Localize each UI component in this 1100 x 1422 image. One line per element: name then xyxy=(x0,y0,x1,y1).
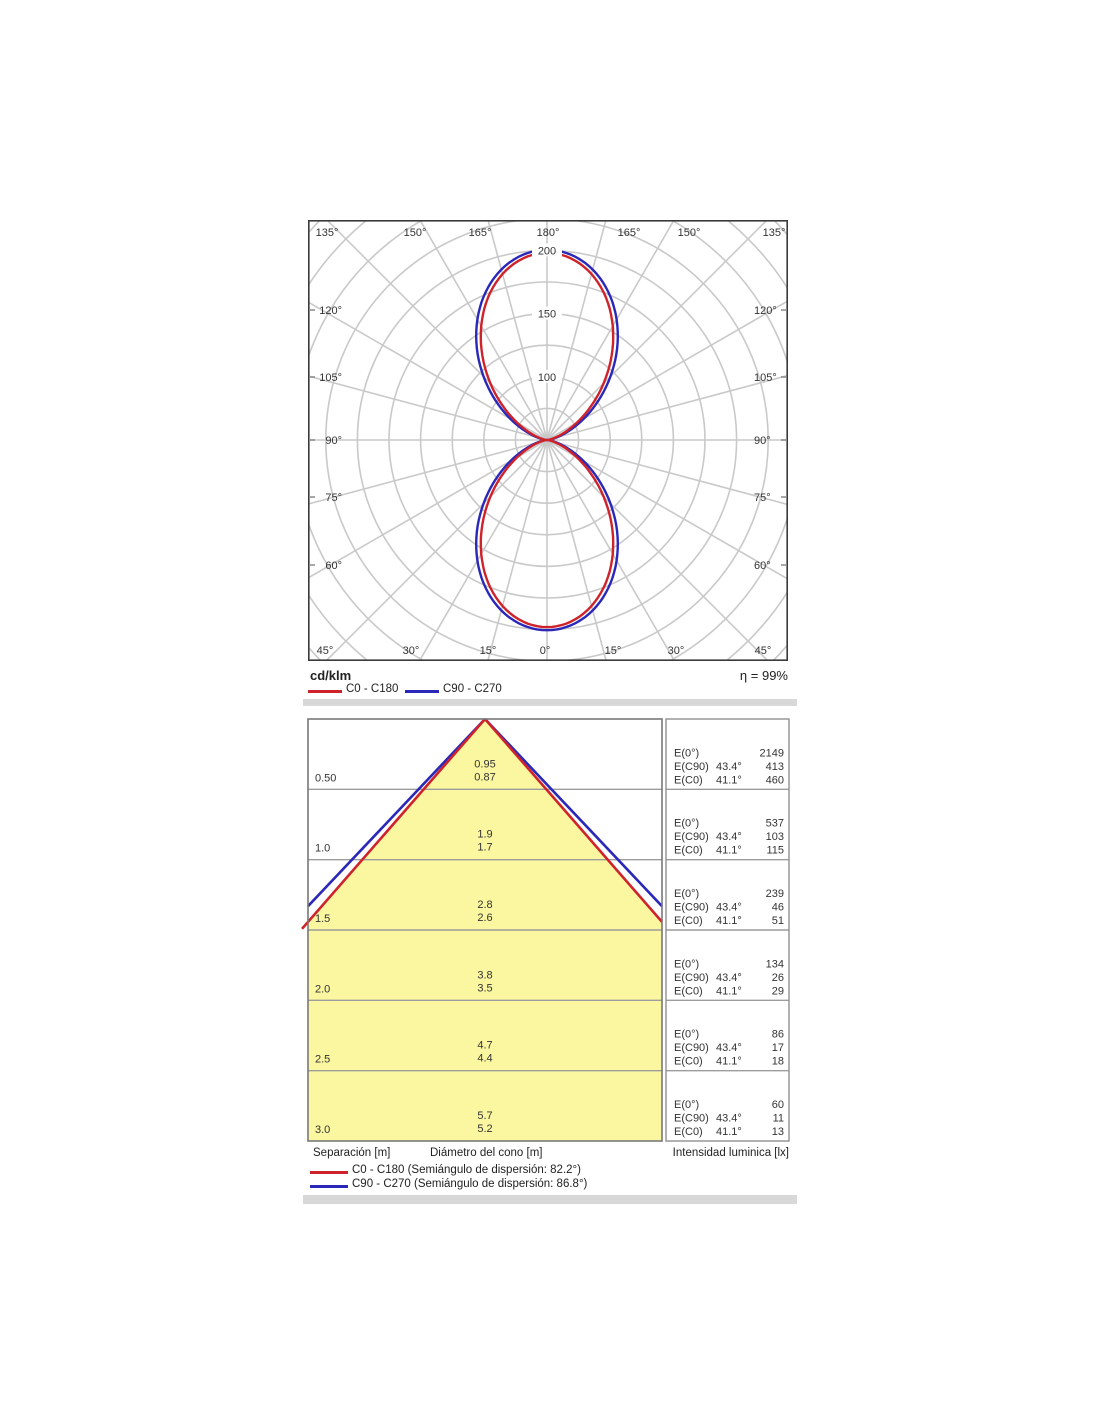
cone-row-ec90-value: 46 xyxy=(772,902,784,914)
cone-row-ec90-label: E(C90) xyxy=(674,902,709,914)
cone-row-ec90-value: 26 xyxy=(772,972,784,984)
polar-angle-label-bottom: 15° xyxy=(480,645,497,657)
polar-angle-label-top: 180° xyxy=(537,227,560,239)
polar-grid-radial xyxy=(547,440,788,661)
cone-row-diameter-c0: 2.6 xyxy=(477,912,492,924)
polar-grid-radial xyxy=(308,440,547,661)
polar-angle-label-right: 60° xyxy=(754,560,771,572)
cone-row-diameter-c0: 0.87 xyxy=(474,771,495,783)
polar-radial-tick-label: 100 xyxy=(538,372,556,384)
cone-row-ec0-angle: 41.1° xyxy=(716,774,742,786)
cone-row-ec0-label: E(C0) xyxy=(674,1056,703,1068)
cone-row-e0-value: 2149 xyxy=(760,747,784,759)
cone-row-separation: 2.5 xyxy=(315,1054,330,1066)
polar-angle-label-left: 120° xyxy=(319,305,342,317)
polar-angle-label-right: 75° xyxy=(754,492,771,504)
cone-row-diameter-c0: 1.7 xyxy=(477,842,492,854)
cone-row-ec0-angle: 41.1° xyxy=(716,1126,742,1138)
polar-angle-label-top: 150° xyxy=(678,227,701,239)
polar-angle-label-top: 135° xyxy=(316,227,339,239)
cone-row-ec90-value: 17 xyxy=(772,1042,784,1054)
polar-grid-radial xyxy=(547,440,788,661)
polar-intensity-chart: 100150200250135°150°165°180°165°150°135°… xyxy=(308,220,788,661)
cone-row-e0-label: E(0°) xyxy=(674,1029,699,1041)
cone-row-ec90-label: E(C90) xyxy=(674,1113,709,1125)
cone-row-diameter-c0: 4.4 xyxy=(477,1053,492,1065)
cone-row-ec90-label: E(C90) xyxy=(674,831,709,843)
efficiency-label: η = 99% xyxy=(678,668,788,683)
cone-row-e0-value: 60 xyxy=(772,1099,784,1111)
cone-row-e0-label: E(0°) xyxy=(674,888,699,900)
cone-row-ec0-value: 18 xyxy=(772,1056,784,1068)
cone-row-ec0-angle: 41.1° xyxy=(716,985,742,997)
polar-legend-swatch-c90 xyxy=(405,690,439,693)
polar-angle-label-left: 75° xyxy=(325,492,342,504)
cone-row-ec90-label: E(C90) xyxy=(674,1042,709,1054)
cone-row-e0-label: E(0°) xyxy=(674,1099,699,1111)
polar-angle-label-bottom: 15° xyxy=(605,645,622,657)
cone-footer-diameter: Diámetro del cono [m] xyxy=(430,1147,543,1159)
cone-legend-label-c90: C90 - C270 (Semiángulo de dispersión: 86… xyxy=(352,1178,587,1190)
cone-row-ec90-value: 11 xyxy=(773,1113,784,1125)
polar-angle-label-top: 165° xyxy=(618,227,641,239)
polar-angle-label-bottom: 30° xyxy=(403,645,420,657)
cone-row-separation: 0.50 xyxy=(315,772,336,784)
separator-bar-top xyxy=(303,699,797,706)
cone-row-e0-label: E(0°) xyxy=(674,818,699,830)
cone-footer-intensity: Intensidad luminica [lx] xyxy=(655,1147,789,1159)
cone-row-diameter-c90: 5.7 xyxy=(477,1110,492,1122)
cone-row-ec0-label: E(C0) xyxy=(674,774,703,786)
cone-row-diameter-c90: 4.7 xyxy=(477,1040,492,1052)
polar-unit-label: cd/klm xyxy=(310,668,351,683)
cone-row-e0-value: 86 xyxy=(772,1029,784,1041)
cone-row-diameter-c90: 0.95 xyxy=(474,758,495,770)
cone-row-ec90-value: 103 xyxy=(766,831,784,843)
polar-angle-label-right: 105° xyxy=(754,372,777,384)
polar-radial-tick-label: 200 xyxy=(538,245,556,257)
cone-row-ec0-angle: 41.1° xyxy=(716,1056,742,1068)
polar-grid-radial xyxy=(547,440,788,661)
cone-row-diameter-c0: 5.2 xyxy=(477,1123,492,1135)
cone-row-ec90-angle: 43.4° xyxy=(716,831,742,843)
cone-row-e0-label: E(0°) xyxy=(674,747,699,759)
cone-row-ec90-angle: 43.4° xyxy=(716,1042,742,1054)
polar-angle-label-right: 120° xyxy=(754,305,777,317)
cone-row-e0-value: 239 xyxy=(766,888,784,900)
photometric-datasheet-page: 100150200250135°150°165°180°165°150°135°… xyxy=(0,0,1100,1422)
polar-angle-label-bottom: 45° xyxy=(755,645,772,657)
cone-row-diameter-c90: 1.9 xyxy=(477,829,492,841)
separator-bar-bottom xyxy=(303,1195,797,1204)
polar-angle-label-left: 90° xyxy=(325,435,342,447)
cone-row-ec0-label: E(C0) xyxy=(674,915,703,927)
polar-legend-label-c90: C90 - C270 xyxy=(443,683,502,695)
polar-angle-label-top: 150° xyxy=(404,227,427,239)
cone-row-ec90-angle: 43.4° xyxy=(716,1113,742,1125)
cone-row-ec90-angle: 43.4° xyxy=(716,902,742,914)
cone-legend-swatch-c0 xyxy=(310,1171,348,1174)
cone-row-e0-value: 537 xyxy=(766,818,784,830)
cone-row-ec0-label: E(C0) xyxy=(674,845,703,857)
cone-row-ec90-label: E(C90) xyxy=(674,972,709,984)
polar-angle-label-bottom: 30° xyxy=(668,645,685,657)
polar-grid xyxy=(308,220,788,661)
polar-angle-label-bottom: 45° xyxy=(317,645,334,657)
polar-angle-label-left: 105° xyxy=(319,372,342,384)
polar-legend-label-c0: C0 - C180 xyxy=(346,683,398,695)
cone-row-ec0-angle: 41.1° xyxy=(716,915,742,927)
cone-row-diameter-c90: 3.8 xyxy=(477,969,492,981)
polar-angle-label-top: 165° xyxy=(469,227,492,239)
cone-row-ec90-value: 413 xyxy=(766,761,784,773)
polar-angle-label-bottom: 0° xyxy=(540,645,551,657)
cone-footer-separation: Separación [m] xyxy=(313,1147,390,1159)
cone-row-separation: 2.0 xyxy=(315,983,330,995)
cone-legend-label-c0: C0 - C180 (Semiángulo de dispersión: 82.… xyxy=(352,1164,581,1176)
cone-row-ec90-angle: 43.4° xyxy=(716,761,742,773)
polar-angle-label-right: 90° xyxy=(754,435,771,447)
cone-row-ec90-label: E(C90) xyxy=(674,761,709,773)
cone-row-ec0-value: 13 xyxy=(772,1126,784,1138)
cone-row-ec0-angle: 41.1° xyxy=(716,845,742,857)
cone-diagram-chart: 0.500.950.87E(0°)E(C90)E(C0)43.4°41.1°21… xyxy=(300,713,800,1150)
cone-row-diameter-c90: 2.8 xyxy=(477,899,492,911)
cone-row-ec0-value: 29 xyxy=(772,985,784,997)
polar-legend-swatch-c0 xyxy=(308,690,342,693)
cone-row-ec0-value: 460 xyxy=(766,774,784,786)
cone-legend-swatch-c90 xyxy=(310,1185,348,1188)
cone-row-diameter-c0: 3.5 xyxy=(477,982,492,994)
polar-angle-label-top: 135° xyxy=(763,227,786,239)
polar-grid-radial xyxy=(308,440,547,661)
cone-row-e0-label: E(0°) xyxy=(674,958,699,970)
cone-row-ec0-label: E(C0) xyxy=(674,985,703,997)
polar-grid-radial xyxy=(308,440,547,661)
cone-row-e0-value: 134 xyxy=(766,958,784,970)
cone-row-separation: 1.5 xyxy=(315,913,330,925)
cone-row-separation: 3.0 xyxy=(315,1124,330,1136)
cone-row-ec0-label: E(C0) xyxy=(674,1126,703,1138)
cone-row-separation: 1.0 xyxy=(315,843,330,855)
polar-angle-label-left: 60° xyxy=(325,560,342,572)
cone-row-ec0-value: 115 xyxy=(766,845,784,857)
cone-row-ec0-value: 51 xyxy=(772,915,784,927)
cone-row-ec90-angle: 43.4° xyxy=(716,972,742,984)
polar-radial-tick-label: 150 xyxy=(538,309,556,321)
